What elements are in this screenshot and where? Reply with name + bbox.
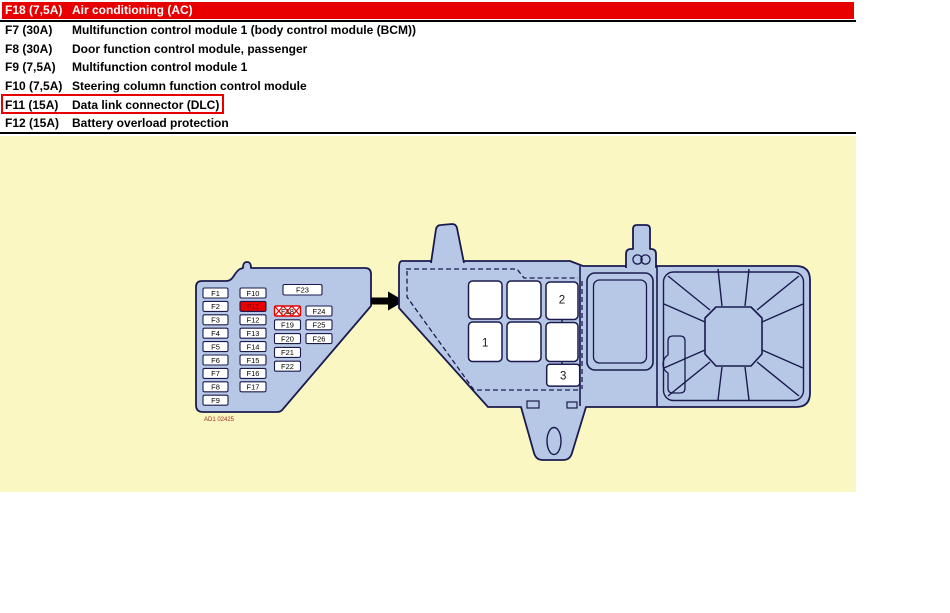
fuse-cell-label: F26 bbox=[313, 334, 326, 343]
fuse-description: Multifunction control module 1 bbox=[72, 60, 247, 74]
fuse-id: F9 (7,5A) bbox=[5, 60, 56, 74]
fuse-cell-label: F4 bbox=[211, 329, 220, 338]
engine-fuse-box: 1 2 3 bbox=[399, 224, 810, 460]
fuse-id: F12 (15A) bbox=[5, 116, 59, 130]
slot-number: 3 bbox=[560, 371, 566, 383]
bottom-clip bbox=[567, 402, 577, 408]
fuse-cell-label: F13 bbox=[247, 329, 260, 338]
divider-bottom bbox=[0, 132, 856, 134]
fuse-cell-label: F12 bbox=[247, 316, 260, 325]
fuse-cell-label: F16 bbox=[247, 369, 260, 378]
slot-number: 2 bbox=[559, 295, 565, 307]
fuse-cell-label: F6 bbox=[211, 356, 220, 365]
fuse-row-f10[interactable]: F10 (7,5A) Steering column function cont… bbox=[0, 77, 856, 96]
fuse-column-1: F1 F2 F3 F4 F5 F6 F7 F8 F9 bbox=[203, 288, 228, 405]
fusebox-diagram: F1 F2 F3 F4 F5 F6 F7 F8 F9 F10 F11 F12 F… bbox=[0, 136, 856, 492]
fuse-cell-label: F23 bbox=[296, 286, 309, 295]
bottom-clip bbox=[527, 401, 539, 408]
fuse-column-4: F24 F25 F26 bbox=[306, 306, 332, 344]
selected-fuse-outline bbox=[1, 94, 224, 114]
fuse-cell-label: F10 bbox=[247, 289, 260, 298]
fuse-cell-label: F5 bbox=[211, 342, 220, 351]
figure-code: AD1 02425 bbox=[204, 417, 235, 423]
fuse-id: F10 (7,5A) bbox=[5, 79, 62, 93]
fuse-cell-label: F7 bbox=[211, 369, 220, 378]
fuse-description: Battery overload protection bbox=[72, 116, 229, 130]
fuse-table: F7 (30A) Multifunction control module 1 … bbox=[0, 21, 856, 133]
highlighted-fuse-label: F11 bbox=[247, 302, 259, 311]
fuse-cell-label: F8 bbox=[211, 383, 220, 392]
fuse-cell-label: F19 bbox=[281, 321, 294, 330]
fuse-description: Steering column function control module bbox=[72, 79, 307, 93]
fuse-id: F7 (30A) bbox=[5, 23, 52, 37]
fuse-cell-label: F21 bbox=[281, 348, 294, 357]
fuse-cell-label: F17 bbox=[247, 383, 260, 392]
fuse-row-f7[interactable]: F7 (30A) Multifunction control module 1 … bbox=[0, 21, 856, 40]
fuse-cell-label: F14 bbox=[247, 342, 260, 351]
fuse-cell-label: F9 bbox=[211, 396, 220, 405]
selected-fuse-row[interactable]: F18 (7,5A) Air conditioning (AC) bbox=[2, 2, 854, 19]
fuse-cell-label: F24 bbox=[313, 307, 326, 316]
fuse-cell-label: F25 bbox=[313, 321, 326, 330]
fuse-row-f9[interactable]: F9 (7,5A) Multifunction control module 1 bbox=[0, 58, 856, 77]
fuse-column-3: F18 F19 F20 F21 F22 bbox=[275, 306, 301, 371]
fuse-id: F8 (30A) bbox=[5, 42, 52, 56]
slot-number: 1 bbox=[482, 338, 488, 350]
fuse-cell-label: F1 bbox=[211, 289, 220, 298]
fuse-description: Door function control module, passenger bbox=[72, 42, 307, 56]
mounting-tab-left bbox=[431, 224, 464, 263]
fuse-cell-label: F2 bbox=[211, 302, 220, 311]
fuse-description: Multifunction control module 1 (body con… bbox=[72, 23, 416, 37]
fuse-cell-label: F3 bbox=[211, 316, 220, 325]
fuse-row-f12[interactable]: F12 (15A) Battery overload protection bbox=[0, 114, 856, 133]
fuse-id: F18 (7,5A) bbox=[5, 3, 62, 17]
manual-page: F18 (7,5A) Air conditioning (AC) F7 (30A… bbox=[0, 0, 950, 613]
engine-fuse-box-outline bbox=[399, 261, 810, 460]
fuse-cell-label: F20 bbox=[281, 334, 294, 343]
fuse-cell-label: F22 bbox=[281, 362, 294, 371]
fuse-description: Air conditioning (AC) bbox=[72, 3, 193, 17]
fuse-cell-label: F15 bbox=[247, 356, 260, 365]
interior-fuse-box: F1 F2 F3 F4 F5 F6 F7 F8 F9 F10 F11 F12 F… bbox=[196, 262, 371, 423]
fuse-row-f8[interactable]: F8 (30A) Door function control module, p… bbox=[0, 40, 856, 59]
